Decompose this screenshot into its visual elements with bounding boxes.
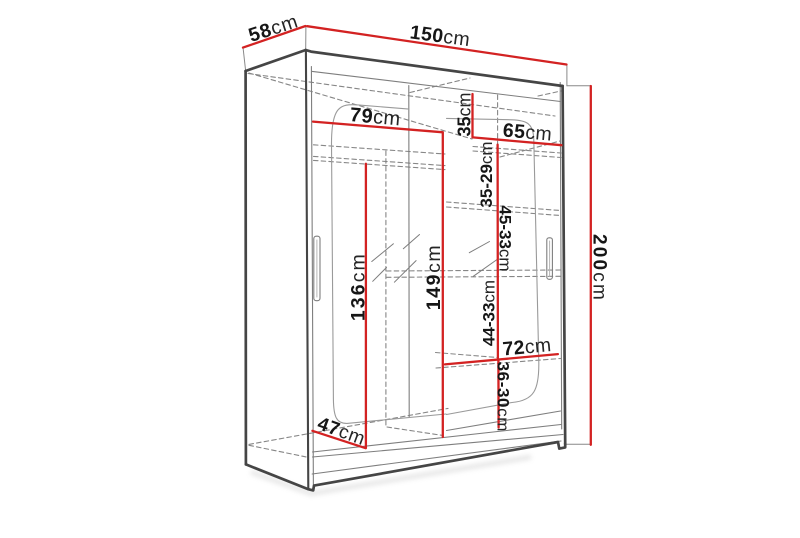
- svg-text:35cm: 35cm: [455, 92, 475, 136]
- svg-text:149cm: 149cm: [423, 244, 445, 311]
- svg-text:200cm: 200cm: [589, 234, 610, 302]
- svg-text:72cm: 72cm: [502, 334, 553, 360]
- svg-text:44-33cm: 44-33cm: [479, 280, 498, 346]
- svg-text:35-29cm: 35-29cm: [477, 141, 496, 207]
- svg-text:79cm: 79cm: [349, 104, 402, 130]
- svg-text:136cm: 136cm: [347, 252, 369, 321]
- svg-text:36-30cm: 36-30cm: [494, 362, 513, 432]
- svg-text:65cm: 65cm: [502, 119, 553, 145]
- svg-text:45-33cm: 45-33cm: [496, 205, 515, 271]
